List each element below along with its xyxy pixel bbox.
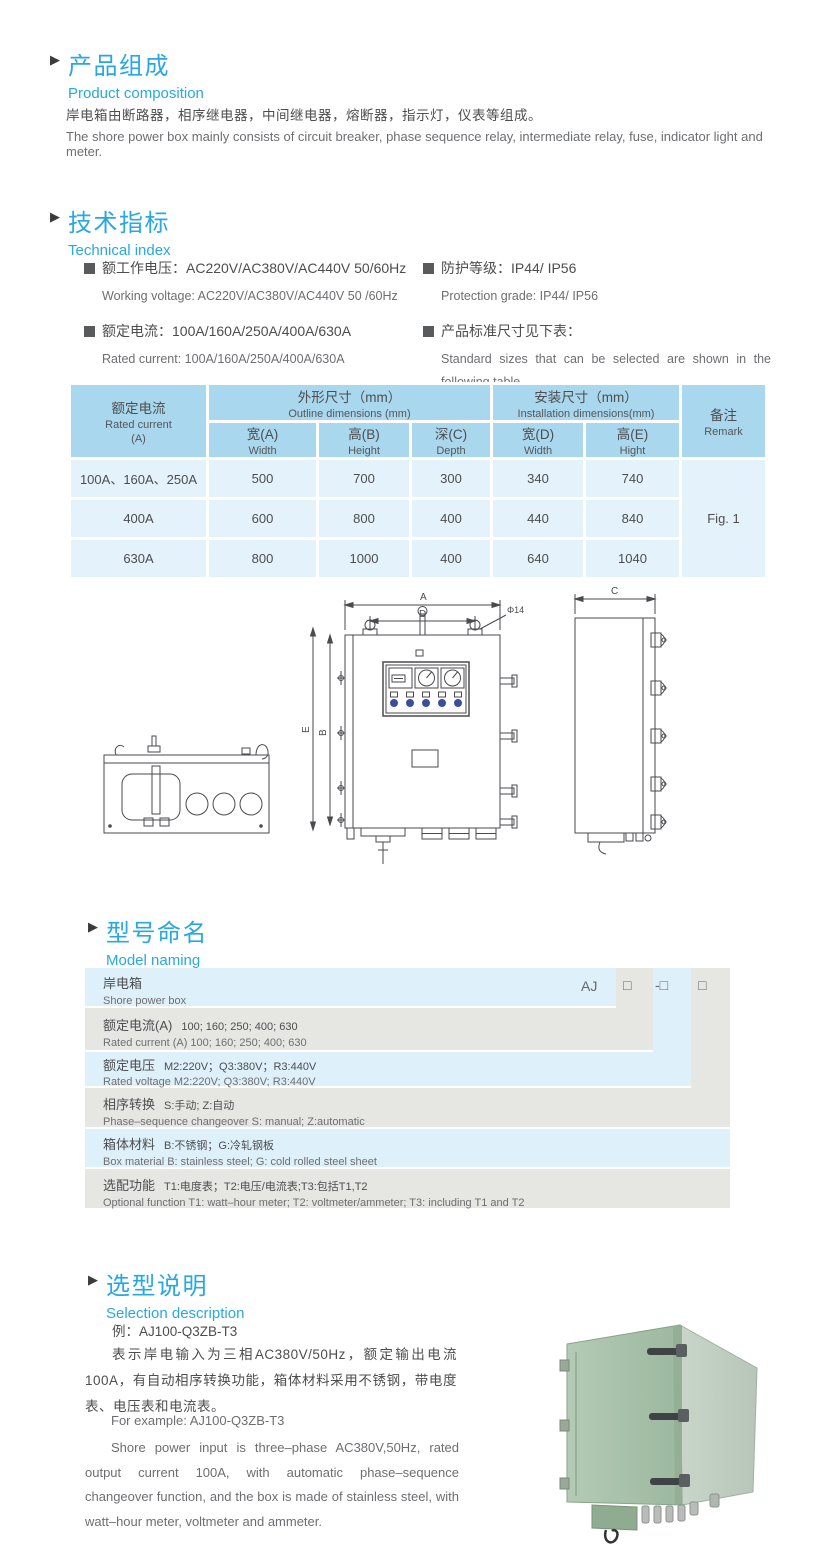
front-view-drawing: A D Φ14 E B xyxy=(301,592,524,864)
product-photo-shore-power-box xyxy=(530,1292,830,1568)
table-row: 400A 600 800 400 440 840 xyxy=(70,499,767,539)
group-header-installation: 安装尺寸（mm） Installation dimensions(mm) xyxy=(492,384,681,422)
section-title-zh: 型号命名 xyxy=(106,913,208,948)
section-arrow-icon: ▶ xyxy=(50,203,60,231)
side-clamps xyxy=(651,633,666,829)
col-header-remark: 备注 Remark xyxy=(681,384,767,459)
selection-body-en: Shore power input is three–phase AC380V,… xyxy=(85,1436,459,1534)
spec-en-text: Protection grade: IP44/ IP56 xyxy=(441,285,771,308)
model-row-optional-function: 选配功能T1:电度表；T2:电压/电流表;T3:包括T1,T2 Optional… xyxy=(85,1169,730,1208)
section-arrow-icon: ▶ xyxy=(50,46,60,74)
product-composition-text-en: The shore power box mainly consists of c… xyxy=(66,129,796,159)
model-row-phase-sequence: 相序转换S:手动; Z:自动 Phase–sequence changeover… xyxy=(85,1088,730,1127)
section-selection-description-header: ▶ 选型说明 Selection description xyxy=(88,1266,244,1322)
table-row: 630A 800 1000 400 640 1040 xyxy=(70,539,767,579)
svg-text:C: C xyxy=(611,586,618,597)
sub-header-width-d: 宽(D)Width xyxy=(492,422,585,459)
spec-zh-text: 防护等级：IP44/ IP56 xyxy=(441,258,576,278)
section-title-zh: 产品组成 xyxy=(68,46,204,81)
section-title-zh: 技术指标 xyxy=(68,203,171,238)
model-row-rated-voltage: 额定电压M2:220V；Q3:380V；R3:440V Rated voltag… xyxy=(85,1052,691,1086)
selection-body-zh: 表示岸电输入为三相AC380V/50Hz，额定输出电流100A，有自动相序转换功… xyxy=(85,1342,457,1420)
spec-protection-grade: 防护等级：IP44/ IP56 Protection grade: IP44/ … xyxy=(423,258,771,308)
spec-en-text: Rated current: 100A/160A/250A/400A/630A xyxy=(102,348,422,371)
svg-text:A: A xyxy=(420,592,427,603)
remark-cell: Fig. 1 xyxy=(681,459,767,579)
section-title-zh: 选型说明 xyxy=(106,1266,244,1301)
model-code-prefix: AJ xyxy=(581,978,597,994)
col-header-rated-current: 额定电流 Rated current (A) xyxy=(70,384,208,459)
model-row-rated-current: 额定电流(A)100; 160; 250; 400; 630 Rated cur… xyxy=(85,1008,653,1050)
technical-drawing-fig1: A D Φ14 E B xyxy=(60,578,770,890)
front-hinges xyxy=(500,675,517,828)
section-arrow-icon: ▶ xyxy=(88,1266,98,1294)
spec-rated-current: 额定电流：100A/160A/250A/400A/630A Rated curr… xyxy=(84,321,422,371)
spec-zh-text: 额定电流：100A/160A/250A/400A/630A xyxy=(102,321,351,341)
bullet-square-icon xyxy=(84,263,95,274)
svg-text:D: D xyxy=(419,609,426,620)
selection-example-zh: 例：AJ100-Q3ZB-T3 xyxy=(85,1320,457,1340)
section-technical-index-header: ▶ 技术指标 Technical index xyxy=(50,203,171,259)
group-header-outline: 外形尺寸（mm） Outline dimensions (mm) xyxy=(208,384,492,422)
section-title-en: Model naming xyxy=(106,952,208,969)
sub-header-height-b: 高(B)Height xyxy=(318,422,411,459)
model-code-current-box: □ xyxy=(623,977,631,993)
model-code-voltage-box: -□ xyxy=(655,977,668,993)
model-row-shore-power-box: 岸电箱 Shore power box xyxy=(85,968,616,1006)
spec-zh-text: 产品标准尺寸见下表： xyxy=(441,321,581,341)
nameplate xyxy=(412,750,438,767)
side-view-drawing: C xyxy=(575,586,666,854)
section-arrow-icon: ▶ xyxy=(88,913,98,941)
spec-en-text: Working voltage: AC220V/AC380V/AC440V 50… xyxy=(102,285,422,308)
sub-header-hight-e: 高(E)Hight xyxy=(585,422,681,459)
product-composition-text-zh: 岸电箱由断路器，相序继电器，中间继电器，熔断器，指示灯，仪表等组成。 xyxy=(66,104,786,124)
svg-text:B: B xyxy=(318,729,329,736)
bullet-square-icon xyxy=(423,326,434,337)
bullet-square-icon xyxy=(84,326,95,337)
selection-example-en: For example: AJ100-Q3ZB-T3 xyxy=(85,1413,459,1428)
bottom-view-drawing xyxy=(104,736,269,833)
spec-working-voltage: 额工作电压：AC220V/AC380V/AC440V 50/60Hz Worki… xyxy=(84,258,422,308)
front-latches xyxy=(337,671,345,827)
section-title-en: Technical index xyxy=(68,242,171,259)
section-model-naming-header: ▶ 型号命名 Model naming xyxy=(88,913,208,969)
meter-panel xyxy=(383,662,469,716)
size-table: 额定电流 Rated current (A) 外形尺寸（mm） Outline … xyxy=(68,382,768,580)
table-row: 100A、160A、250A 500 700 300 340 740 Fig. … xyxy=(70,459,767,499)
section-title-en: Product composition xyxy=(68,85,204,102)
sub-header-depth-c: 深(C)Depth xyxy=(411,422,492,459)
bullet-square-icon xyxy=(423,263,434,274)
datasheet-page: ▶ 产品组成 Product composition 岸电箱由断路器，相序继电器… xyxy=(0,0,830,1568)
model-row-box-material: 箱体材料B:不锈钢；G:冷轧钢板 Box material B: stainle… xyxy=(85,1129,730,1167)
spec-zh-text: 额工作电压：AC220V/AC380V/AC440V 50/60Hz xyxy=(102,258,406,278)
section-product-composition-header: ▶ 产品组成 Product composition xyxy=(50,46,204,102)
svg-text:E: E xyxy=(301,726,312,733)
svg-text:Φ14: Φ14 xyxy=(507,605,524,615)
spec-column-left: 额工作电压：AC220V/AC380V/AC440V 50/60Hz Worki… xyxy=(84,258,422,384)
model-code-material-box: □ xyxy=(698,977,706,993)
sub-header-width-a: 宽(A)Width xyxy=(208,422,318,459)
